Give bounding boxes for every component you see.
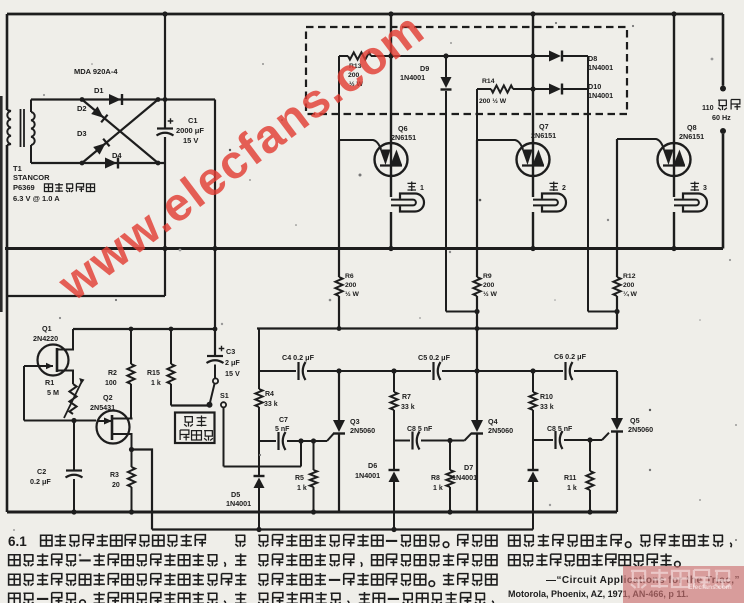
svg-text:R6: R6 [345, 273, 354, 280]
svg-text:R1: R1 [45, 378, 54, 387]
svg-text:3: 3 [703, 185, 707, 192]
svg-text:5 M: 5 M [47, 388, 59, 397]
svg-text:0.2 μF: 0.2 μF [30, 477, 51, 486]
svg-text:R10: R10 [540, 394, 553, 401]
svg-text:C2: C2 [37, 467, 46, 476]
svg-text:100: 100 [105, 380, 117, 387]
svg-text:2N6151: 2N6151 [391, 133, 416, 142]
svg-text:1: 1 [420, 185, 424, 192]
svg-text:Q3: Q3 [350, 417, 360, 426]
svg-text:15 V: 15 V [225, 369, 240, 378]
svg-text:R12: R12 [623, 273, 636, 280]
svg-text:C5 0.2 μF: C5 0.2 μF [418, 353, 451, 362]
svg-text:Q6: Q6 [398, 124, 408, 133]
svg-text:D5: D5 [231, 490, 240, 499]
svg-text:R4: R4 [265, 391, 274, 398]
svg-text:60 Hz: 60 Hz [712, 113, 731, 122]
svg-text:Elecfans.com: Elecfans.com [688, 584, 732, 591]
svg-text:D2: D2 [77, 104, 87, 113]
svg-text:15 V: 15 V [183, 136, 198, 145]
svg-text:D1: D1 [94, 86, 104, 95]
svg-text:C6 0.2 μF: C6 0.2 μF [554, 352, 587, 361]
svg-text:C1: C1 [188, 116, 198, 125]
svg-text:T1: T1 [13, 164, 22, 173]
svg-text:Q4: Q4 [488, 417, 498, 426]
svg-text:½ W: ½ W [345, 290, 360, 298]
svg-text:1N4001: 1N4001 [588, 63, 613, 72]
svg-text:2000 μF: 2000 μF [176, 126, 204, 135]
svg-text:33 k: 33 k [264, 401, 278, 408]
svg-text:D8: D8 [588, 54, 597, 63]
svg-text:R11: R11 [564, 475, 577, 482]
svg-text:200: 200 [623, 282, 635, 289]
svg-text:200 ½ W: 200 ½ W [479, 97, 507, 105]
svg-text:2N5060: 2N5060 [350, 426, 375, 435]
svg-text:R8: R8 [431, 475, 440, 482]
svg-text:1N4001: 1N4001 [588, 91, 613, 100]
svg-text:Q7: Q7 [539, 122, 549, 131]
svg-text:½ W: ½ W [483, 290, 498, 298]
svg-text:D9: D9 [420, 64, 429, 73]
svg-text:200: 200 [345, 282, 357, 289]
svg-text:2N4220: 2N4220 [33, 334, 58, 343]
svg-text:1 k: 1 k [297, 485, 307, 492]
svg-text:P6369: P6369 [13, 183, 35, 192]
svg-text:2: 2 [562, 185, 566, 192]
svg-text:Q2: Q2 [103, 393, 113, 402]
svg-text:Q1: Q1 [42, 324, 52, 333]
svg-text:2N6151: 2N6151 [531, 131, 556, 140]
svg-text:33 k: 33 k [540, 404, 554, 411]
svg-text:1N4001: 1N4001 [355, 471, 380, 480]
svg-text:2 μF: 2 μF [225, 358, 240, 367]
svg-text:Q8: Q8 [687, 123, 697, 132]
svg-text:1N4001: 1N4001 [400, 73, 425, 82]
svg-text:R9: R9 [483, 273, 492, 280]
svg-text:R15: R15 [147, 370, 160, 377]
svg-text:R5: R5 [295, 475, 304, 482]
svg-text:D7: D7 [464, 463, 473, 472]
svg-text:1N4001: 1N4001 [452, 473, 477, 482]
svg-text:Q5: Q5 [630, 416, 640, 425]
svg-text:1 k: 1 k [567, 485, 577, 492]
svg-text:R2: R2 [108, 370, 117, 377]
svg-text:5 nF: 5 nF [275, 426, 290, 433]
svg-text:C8 5 nF: C8 5 nF [407, 426, 433, 433]
svg-text:R14: R14 [482, 78, 495, 85]
svg-text:1N4001: 1N4001 [226, 499, 251, 508]
svg-text:110: 110 [702, 103, 714, 112]
svg-text:R3: R3 [110, 472, 119, 479]
svg-text:¼ W: ¼ W [623, 290, 638, 298]
svg-text:6.3 V @ 1.0 A: 6.3 V @ 1.0 A [13, 194, 60, 203]
svg-text:20: 20 [112, 482, 120, 489]
svg-text:MDA 920A-4: MDA 920A-4 [74, 67, 118, 76]
svg-text:R7: R7 [402, 394, 411, 401]
svg-text:2N6151: 2N6151 [679, 132, 704, 141]
svg-text:200: 200 [483, 282, 495, 289]
svg-text:2N5060: 2N5060 [488, 426, 513, 435]
svg-text:D4: D4 [112, 151, 122, 160]
svg-text:1 k: 1 k [433, 485, 443, 492]
svg-text:C3: C3 [226, 347, 235, 356]
svg-text:S1: S1 [220, 391, 229, 400]
svg-text:STANCOR: STANCOR [13, 173, 50, 182]
svg-text:C4 0.2 μF: C4 0.2 μF [282, 353, 315, 362]
svg-text:C7: C7 [279, 417, 288, 424]
svg-text:2N5060: 2N5060 [628, 425, 653, 434]
svg-text:2N5431: 2N5431 [90, 403, 115, 412]
svg-text:C8 5 nF: C8 5 nF [547, 426, 573, 433]
svg-text:33 k: 33 k [401, 404, 415, 411]
svg-text:1 k: 1 k [151, 380, 161, 387]
svg-text:D10: D10 [588, 82, 601, 91]
svg-text:D3: D3 [77, 129, 87, 138]
svg-text:6.1: 6.1 [8, 534, 27, 549]
svg-text:D6: D6 [368, 461, 377, 470]
